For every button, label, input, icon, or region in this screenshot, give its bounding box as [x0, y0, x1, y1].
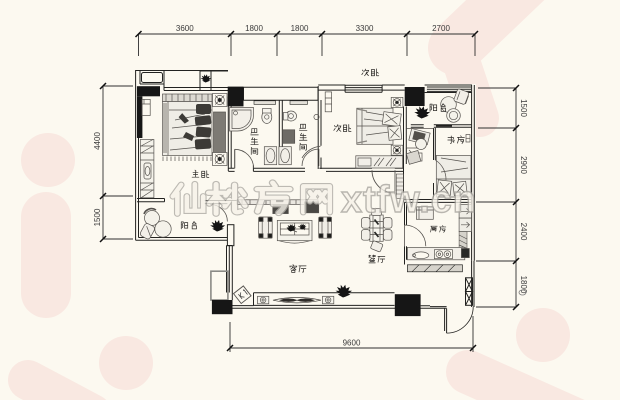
svg-text:2700: 2700 [432, 24, 450, 33]
svg-text:1500: 1500 [93, 208, 102, 226]
svg-text:3600: 3600 [176, 24, 194, 33]
svg-text:1800: 1800 [245, 24, 263, 33]
svg-text:1800: 1800 [519, 276, 528, 294]
svg-text:2900: 2900 [519, 156, 528, 174]
svg-text:1500: 1500 [519, 99, 528, 117]
svg-text:4400: 4400 [93, 132, 102, 150]
svg-text:9600: 9600 [343, 339, 361, 348]
svg-text:1800: 1800 [291, 24, 309, 33]
svg-text:xtfw.cn: xtfw.cn [341, 179, 477, 221]
svg-text:3300: 3300 [356, 24, 374, 33]
svg-text:2400: 2400 [519, 223, 528, 241]
